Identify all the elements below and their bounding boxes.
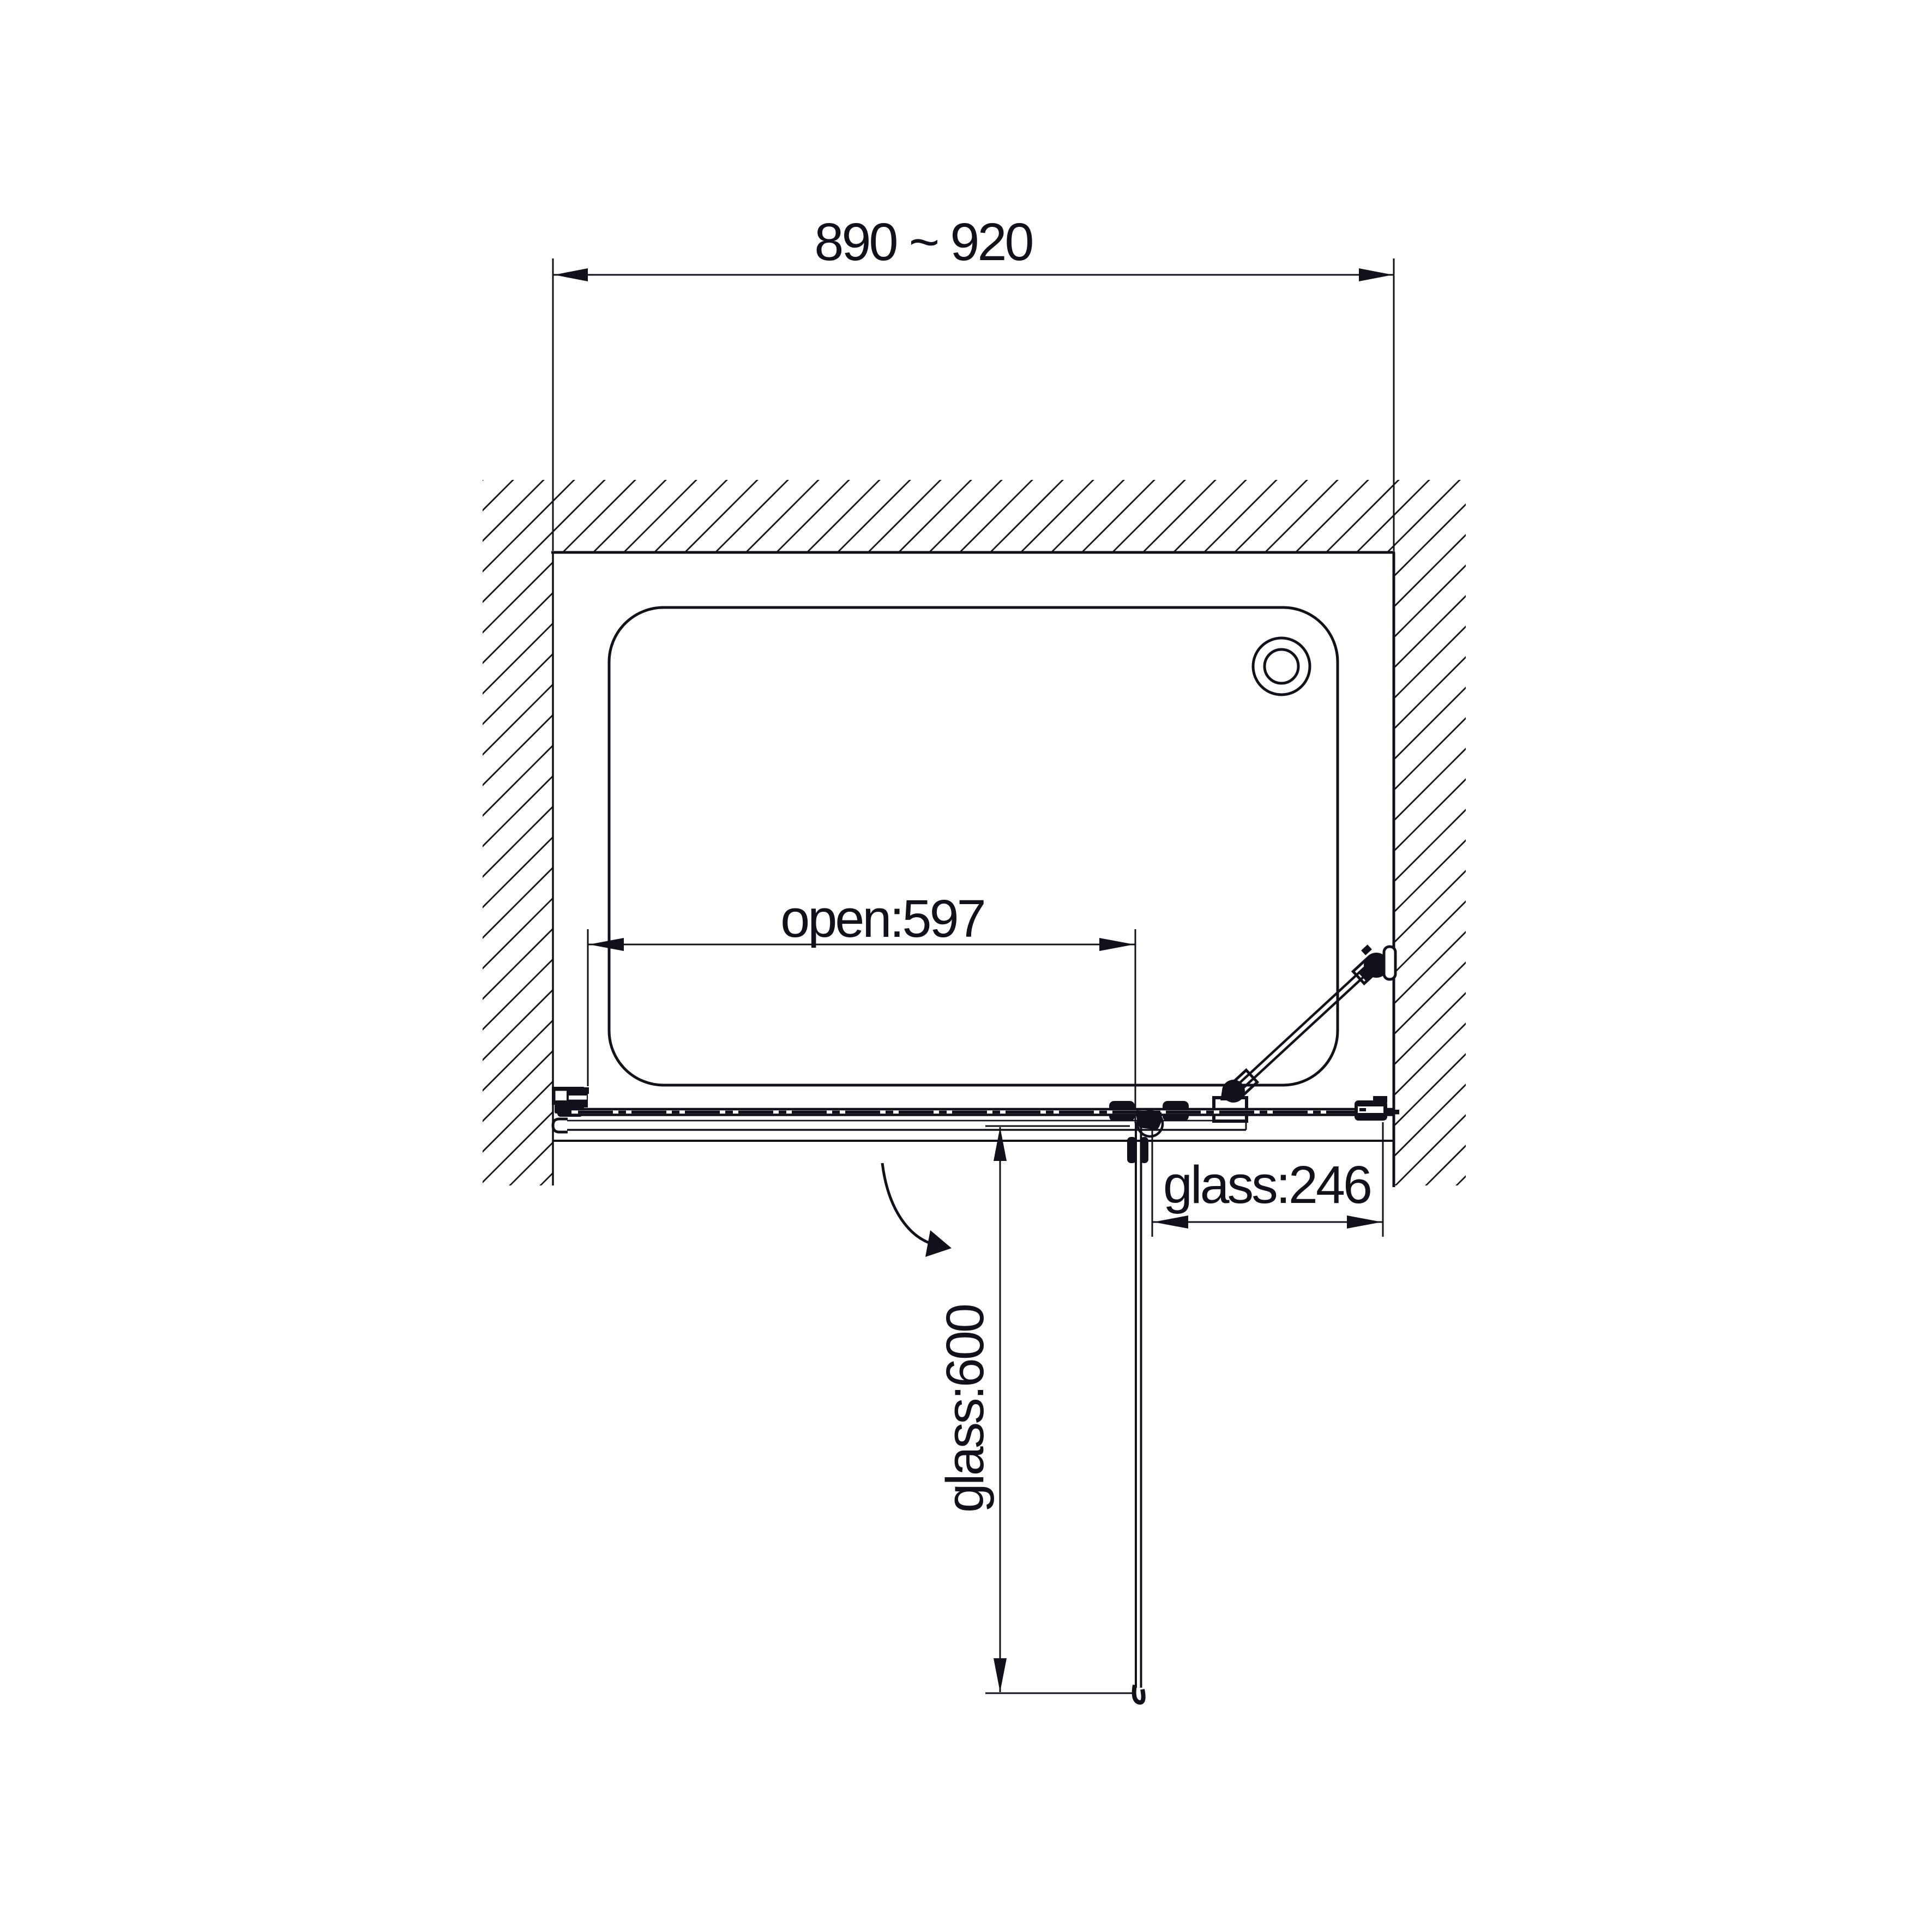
svg-text:glass:246: glass:246 [1163, 1155, 1370, 1214]
svg-text:890 ~ 920: 890 ~ 920 [814, 212, 1032, 272]
svg-text:glass:600: glass:600 [935, 1305, 995, 1513]
svg-text:open:597: open:597 [780, 889, 984, 948]
